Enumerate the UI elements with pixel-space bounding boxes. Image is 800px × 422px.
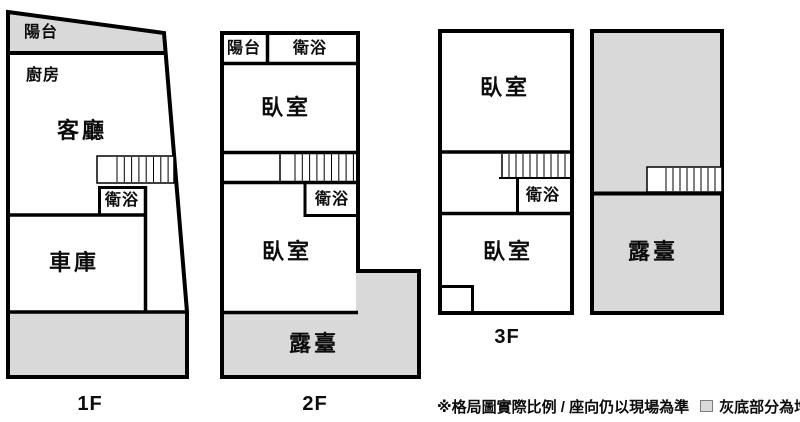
1f-room-label-bathroom: 衛浴 (105, 193, 139, 209)
gray-fill-legend-swatch-icon (700, 400, 713, 412)
3f-room-label-bedroom-lower: 臥室 (483, 241, 533, 263)
floor-3f-plan (440, 31, 572, 313)
rooftop-stairs-icon (647, 167, 722, 192)
floor-label-1f: 1F (77, 394, 102, 414)
1f-room-label-kitchen: 廚房 (26, 68, 60, 84)
floorplan-drawing (0, 0, 800, 422)
3f-outer-wall (440, 31, 572, 313)
1f-room-label-garage: 車庫 (49, 252, 99, 274)
2f-room-label-balcony: 陽台 (227, 41, 261, 57)
floorplan-canvas: 陽台 廚房 客廳 衛浴 車庫 1F 陽台 衛浴 臥室 衛浴 臥室 露臺 2F 臥… (0, 0, 800, 422)
legend-text: 灰底部分為增建 (719, 396, 800, 417)
2f-room-label-bedroom-lower: 臥室 (262, 241, 312, 263)
1f-stairs-icon (97, 156, 174, 183)
rooftop-room-label-terrace: 露臺 (628, 241, 678, 263)
floor-label-2f: 2F (302, 394, 327, 414)
floor-label-3f: 3F (494, 327, 519, 347)
2f-room-label-bathroom-middle: 衛浴 (315, 192, 349, 208)
2f-stairs-treads (295, 154, 353, 181)
2f-room-label-bedroom-upper: 臥室 (261, 97, 311, 119)
disclaimer-text: ※格局圖實際比例 / 座向仍以現場為準 (437, 396, 689, 417)
2f-terrace-area (224, 273, 417, 375)
2f-room-label-bathroom-upper: 衛浴 (293, 41, 327, 57)
2f-room-label-terrace: 露臺 (289, 333, 339, 355)
1f-room-label-balcony: 陽台 (24, 25, 58, 41)
footer-note: ※格局圖實際比例 / 座向仍以現場為準 灰底部分為增建 (437, 397, 800, 415)
3f-room-label-bathroom: 衛浴 (526, 188, 560, 204)
1f-room-label-living-room: 客廳 (57, 120, 107, 142)
3f-room-label-bedroom-upper: 臥室 (480, 77, 530, 99)
1f-addition-strip (10, 313, 185, 375)
floor-rooftop-plan (592, 31, 722, 313)
